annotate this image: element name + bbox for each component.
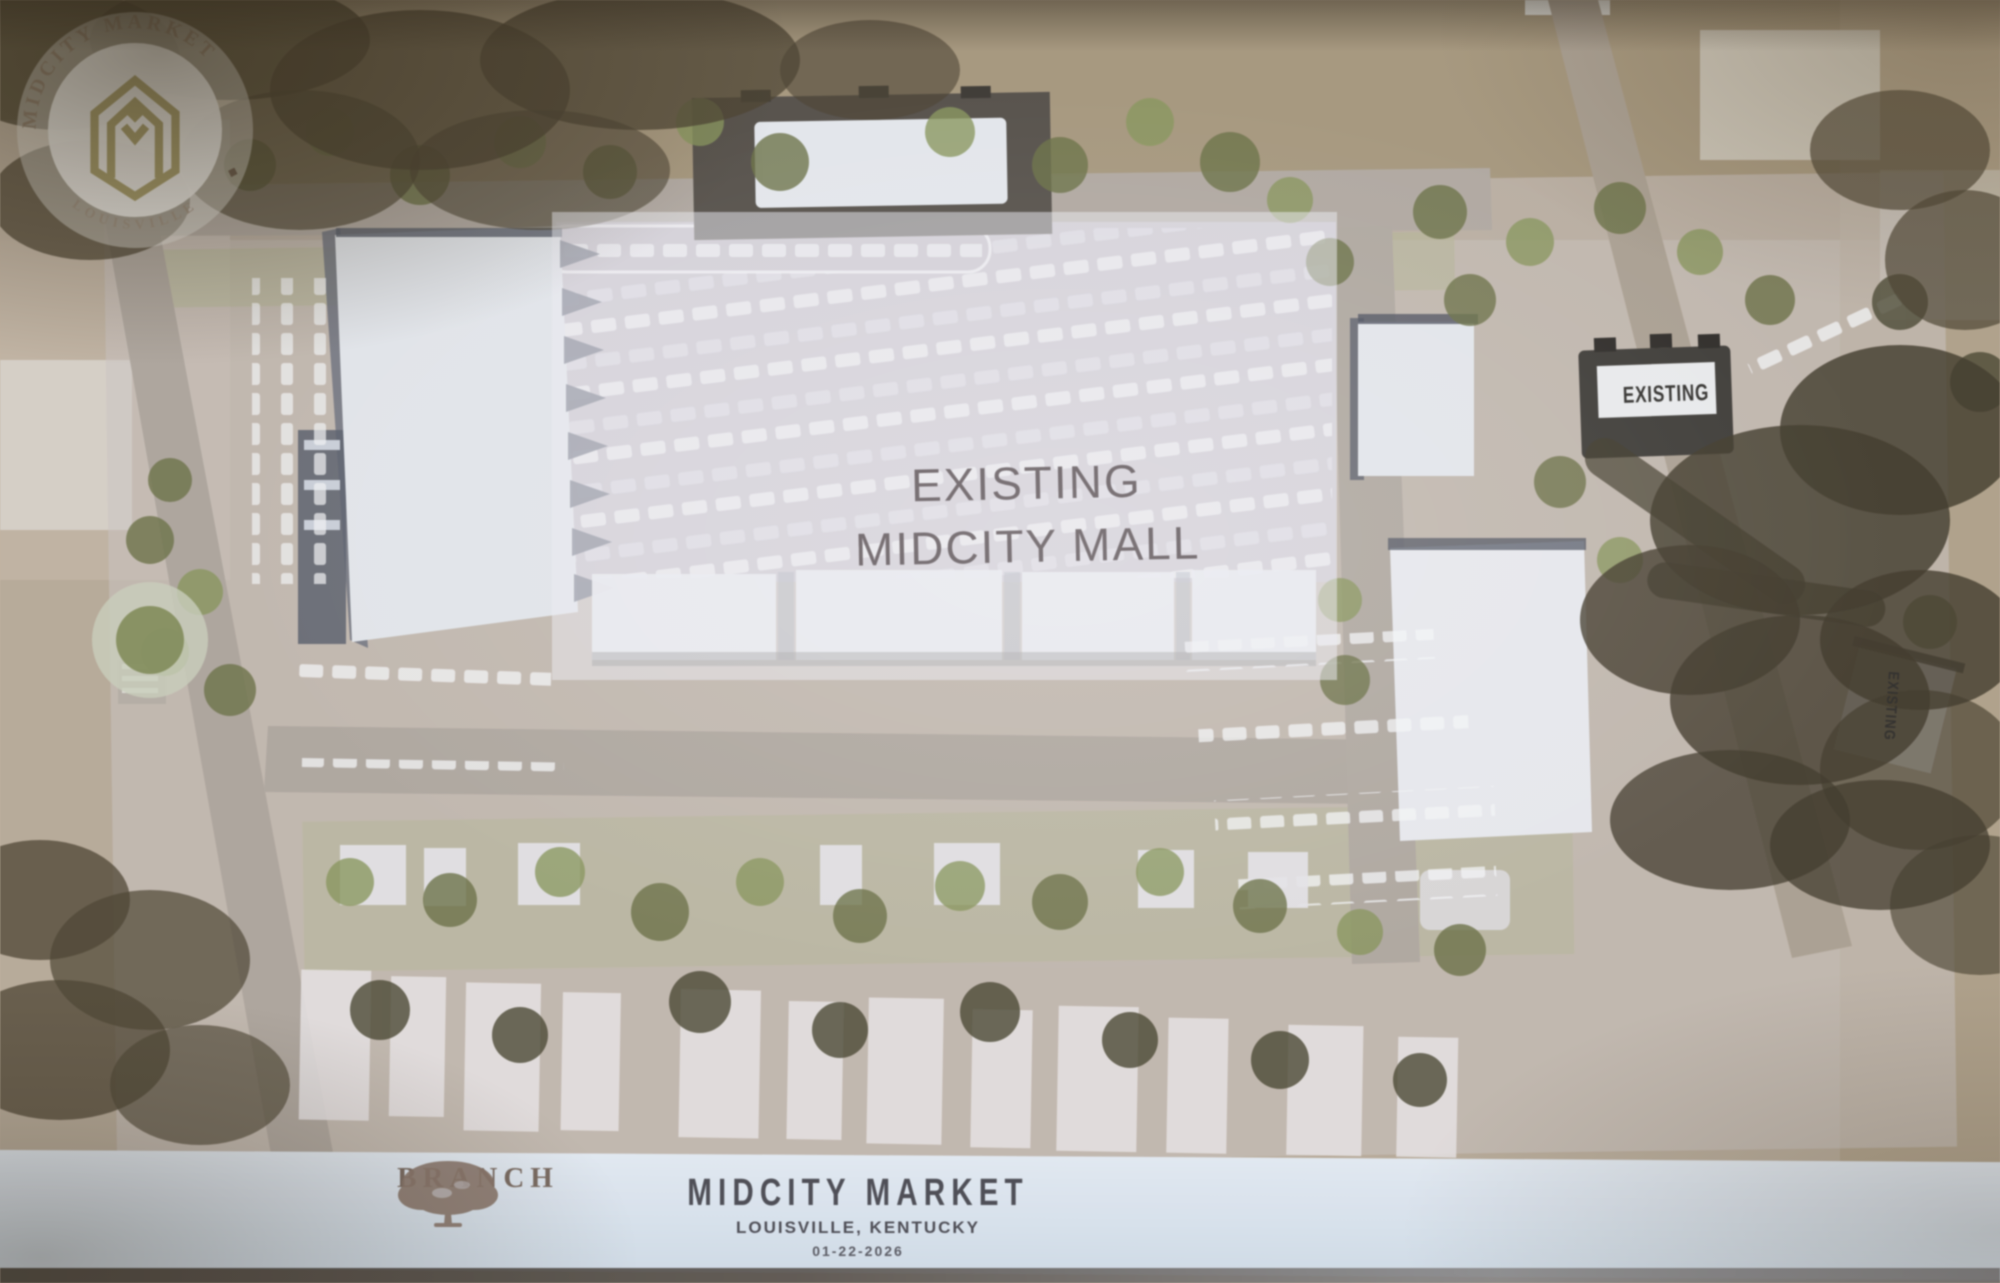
- midcity-market-badge: MIDCITY MARKET LOUISVILLE ◆: [0, 0, 280, 280]
- aerial-site-plan: [0, 0, 2000, 1283]
- project-title-block: MIDCITY MARKET LOUISVILLE, KENTUCKY 01-2…: [658, 1172, 1058, 1259]
- existing-label-northeast: EXISTING: [1615, 379, 1717, 410]
- photo-layer: EXISTING MIDCITY MALL EXISTING EXISTING …: [0, 0, 2000, 1283]
- mall-highlight-overlay: [552, 212, 1337, 680]
- mall-overlay-label: EXISTING MIDCITY MALL: [821, 448, 1234, 583]
- project-location: LOUISVILLE, KENTUCKY: [658, 1218, 1058, 1238]
- projected-site-plan-photo: EXISTING MIDCITY MALL EXISTING EXISTING …: [0, 0, 2000, 1283]
- mall-overlay-label-line1: EXISTING: [821, 448, 1232, 520]
- project-date: 01-22-2026: [658, 1243, 1058, 1259]
- branch-tree-icon: [388, 1160, 508, 1230]
- branch-logo: BRANCH: [388, 1160, 568, 1195]
- mall-overlay-label-line2: MIDCITY MALL: [822, 511, 1233, 583]
- photo-bottom-edge: [0, 1268, 2000, 1283]
- project-title: MIDCITY MARKET: [654, 1172, 1062, 1216]
